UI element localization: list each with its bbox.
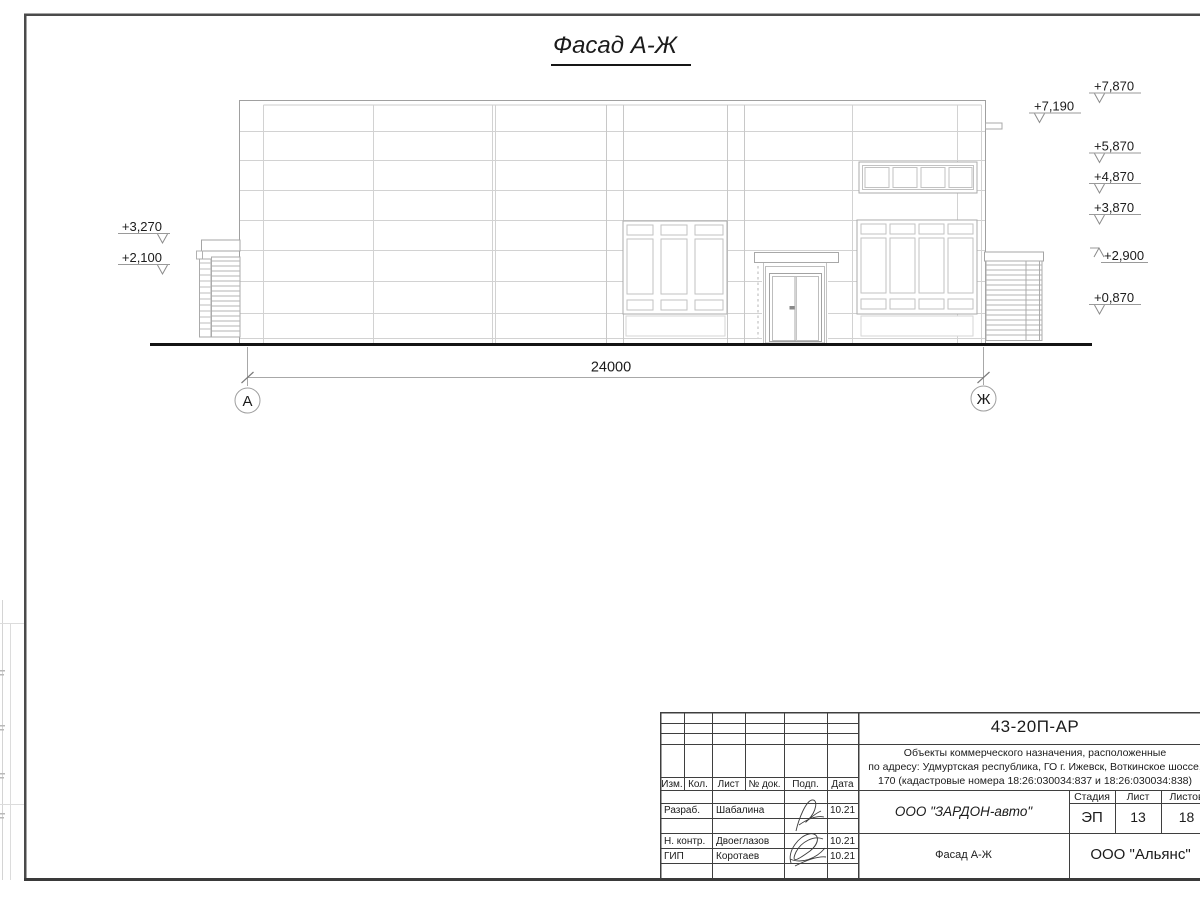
louver-right <box>985 252 1044 341</box>
entrance-door <box>755 253 839 344</box>
drawing-title: Фасад А-Ж <box>551 31 691 66</box>
elevation-marks-left: +3,270 +2,100 <box>118 219 170 274</box>
project-description-line: 170 (кадастровые номера 18:26:030034:837… <box>858 774 1200 788</box>
dimension-group: 24000 А Ж <box>235 347 996 413</box>
elevation-mark: +0,870 <box>1089 290 1141 314</box>
door-handle <box>790 306 795 310</box>
svg-text:+4,870: +4,870 <box>1094 169 1134 184</box>
role-name: Шабалина <box>716 805 764 818</box>
entrance-canopy <box>755 253 839 263</box>
louver-left <box>197 240 241 337</box>
col-doc: № док. <box>745 779 784 792</box>
role-name: Коротаев <box>716 851 759 864</box>
window-right <box>857 220 977 314</box>
spandrel-middle <box>626 316 725 336</box>
col-data: Дата <box>827 779 858 792</box>
left-margin-artifacts <box>0 600 24 880</box>
elevation-mark: +5,870 <box>1089 139 1141 163</box>
elevation-mark: +4,870 <box>1089 169 1141 193</box>
elevation-marker-up-icon <box>1094 248 1104 257</box>
signature-2 <box>790 834 826 866</box>
doc-number: 43-20П-АР <box>858 716 1200 737</box>
sheets-header: Листов <box>1161 791 1200 804</box>
spandrel-right <box>861 316 973 336</box>
stage-header: Стадия <box>1069 791 1115 804</box>
window-middle <box>623 221 727 314</box>
elevation-marker-icon <box>1095 184 1105 193</box>
elevation-marker-icon <box>1035 114 1045 123</box>
sheet-value: 13 <box>1115 809 1161 827</box>
svg-text:+0,870: +0,870 <box>1094 290 1134 305</box>
elevation-marker-icon <box>158 234 168 243</box>
project-description-line: по адресу: Удмуртская республика, ГО г. … <box>858 760 1200 774</box>
elevation-mark: +2,900 <box>1090 248 1148 263</box>
col-izm: Изм. <box>660 779 684 792</box>
col-kol: Кол. <box>684 779 712 792</box>
elevation-marker-icon <box>1095 305 1105 314</box>
elevation-marks-right: +7,870 +7,190 +5,870 +4,870 +3,870 + <box>1029 79 1148 315</box>
role-label: Н. контр. <box>664 836 705 849</box>
elevation-mark: +2,100 <box>118 250 170 274</box>
stage-value: ЭП <box>1069 809 1115 828</box>
clerestory-window <box>859 162 977 193</box>
signatures <box>790 800 826 866</box>
elevation-marker-icon <box>1095 94 1105 103</box>
role-date: 10.21 <box>827 851 858 864</box>
svg-text:+7,190: +7,190 <box>1034 99 1074 114</box>
col-podp: Подп. <box>784 779 827 792</box>
drawing-sheet: 24000 А Ж +3,270 +2,100 +7,870 +7,190 <box>0 0 1200 900</box>
elevation-mark: +3,270 <box>118 219 170 243</box>
svg-text:+3,270: +3,270 <box>122 219 162 234</box>
signature-1 <box>796 800 824 831</box>
elevation-mark: +7,870 <box>1089 79 1141 103</box>
axis-label-zh: Ж <box>977 391 991 408</box>
role-label: ГИП <box>664 851 684 864</box>
company-name: ООО "ЗАРДОН-авто" <box>858 804 1069 821</box>
svg-text:+2,100: +2,100 <box>122 250 162 265</box>
project-description-line: Объекты коммерческого назначения, распол… <box>858 746 1200 760</box>
organization-name: ООО "Альянс" <box>1069 846 1200 865</box>
role-name: Двоеглазов <box>716 836 769 849</box>
project-description: Объекты коммерческого назначения, распол… <box>858 746 1200 788</box>
role-label: Разраб. <box>664 805 700 818</box>
elevation-marker-icon <box>1095 215 1105 224</box>
elevation-marker-icon <box>1095 154 1105 163</box>
sheet-header: Лист <box>1115 791 1161 804</box>
svg-text:+3,870: +3,870 <box>1094 200 1134 215</box>
facade-building <box>197 101 1044 344</box>
sheet-title: Фасад А-Ж <box>858 849 1069 863</box>
svg-text:+5,870: +5,870 <box>1094 139 1134 154</box>
svg-text:+7,870: +7,870 <box>1094 79 1134 94</box>
axis-label-a: А <box>242 393 252 410</box>
sheets-value: 18 <box>1161 809 1200 827</box>
elevation-mark: +7,190 <box>1029 99 1081 123</box>
elevation-marker-icon <box>158 265 168 274</box>
roof-scupper <box>986 123 1003 129</box>
role-date: 10.21 <box>827 836 858 849</box>
svg-text:+2,900: +2,900 <box>1104 248 1144 263</box>
role-date: 10.21 <box>827 805 858 818</box>
col-list: Лист <box>712 779 745 792</box>
dimension-label: 24000 <box>591 360 631 376</box>
elevation-mark: +3,870 <box>1089 200 1141 224</box>
